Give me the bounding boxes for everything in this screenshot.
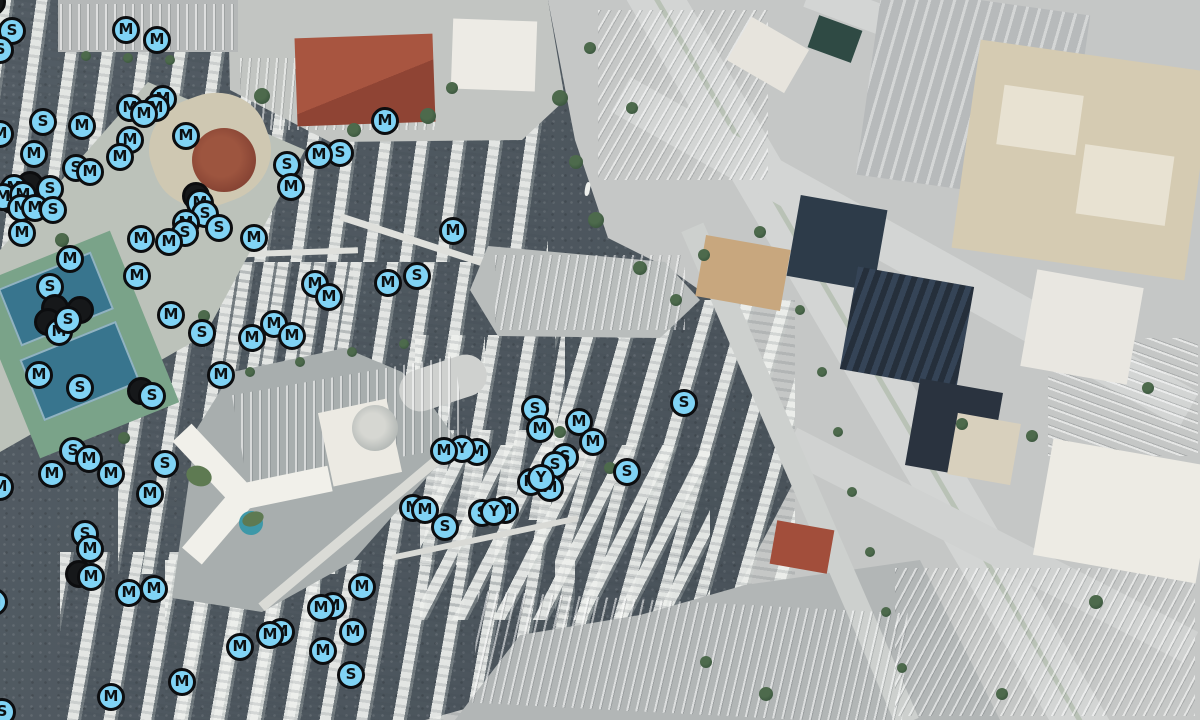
map-marker-m[interactable]: M (56, 245, 84, 273)
map-marker-m[interactable]: M (579, 428, 607, 456)
map-marker-s[interactable]: S (54, 306, 82, 334)
map-marker-m[interactable]: M (430, 437, 458, 465)
marker-layer: MSSMMMMMMSMMMMMMSMMMMMMSMMSMMSMSMMSMMMSM… (0, 0, 1200, 720)
map-marker-m[interactable]: M (136, 480, 164, 508)
map-marker-m[interactable]: M (307, 594, 335, 622)
map-marker-m[interactable]: M (127, 225, 155, 253)
map-marker-s[interactable]: S (337, 661, 365, 689)
map-marker-m[interactable]: M (0, 120, 14, 148)
map-marker-m[interactable]: M (240, 224, 268, 252)
map-marker-s[interactable]: S (188, 319, 216, 347)
map-marker-s[interactable]: S (39, 196, 67, 224)
map-marker-m[interactable]: M (76, 158, 104, 186)
map-marker-s[interactable]: S (151, 450, 179, 478)
map-marker-m[interactable]: M (112, 16, 140, 44)
map-marker-m[interactable]: M (76, 535, 104, 563)
map-marker-m[interactable]: M (256, 621, 284, 649)
map-marker-m[interactable]: M (97, 683, 125, 711)
map-marker-s[interactable]: S (403, 262, 431, 290)
map-marker-m[interactable]: M (277, 173, 305, 201)
map-marker-m[interactable]: M (77, 563, 105, 591)
map-marker-m[interactable]: M (20, 140, 48, 168)
map-marker-m[interactable]: M (168, 668, 196, 696)
map-marker-m[interactable]: M (115, 579, 143, 607)
map-marker-s[interactable]: S (29, 108, 57, 136)
map-marker-m[interactable]: M (38, 460, 66, 488)
map-marker-m[interactable]: M (143, 26, 171, 54)
map-marker-m[interactable]: M (309, 637, 337, 665)
map-marker-m[interactable]: M (172, 122, 200, 150)
map-marker-m[interactable]: M (339, 618, 367, 646)
map-marker-s[interactable]: S (670, 389, 698, 417)
map-marker-m[interactable]: M (305, 141, 333, 169)
map-marker-m[interactable]: M (8, 219, 36, 247)
map-marker-m[interactable]: M (315, 283, 343, 311)
map-marker-m[interactable]: M (0, 473, 14, 501)
map-marker-m[interactable]: M (157, 301, 185, 329)
map-marker-m[interactable]: M (25, 361, 53, 389)
map-marker-s[interactable]: S (66, 374, 94, 402)
map-marker-s[interactable]: S (613, 458, 641, 486)
map-marker-stacked[interactable]: M (0, 0, 6, 16)
map-marker-m[interactable]: M (374, 269, 402, 297)
map-marker-m[interactable]: M (140, 575, 168, 603)
map-marker-m[interactable]: M (106, 143, 134, 171)
map-marker-m[interactable]: M (371, 107, 399, 135)
map-marker-y[interactable]: Y (480, 498, 508, 526)
map-marker-m[interactable]: M (123, 262, 151, 290)
map-marker-m[interactable]: M (226, 633, 254, 661)
map-marker-m[interactable]: M (439, 217, 467, 245)
map-marker-s[interactable]: S (205, 214, 233, 242)
map-marker-m[interactable]: M (155, 228, 183, 256)
map-marker-m[interactable]: M (68, 112, 96, 140)
map-marker-m[interactable]: M (130, 100, 158, 128)
map-marker-m[interactable]: M (97, 460, 125, 488)
satellite-map[interactable]: MSSMMMMMMSMMMMMMSMMMMMMSMMSMMSMSMMSMMMSM… (0, 0, 1200, 720)
map-marker-m[interactable]: M (278, 322, 306, 350)
map-marker-m[interactable]: M (348, 573, 376, 601)
map-marker-s[interactable]: S (138, 382, 166, 410)
map-marker-m[interactable]: M (526, 415, 554, 443)
map-marker-y[interactable]: Y (527, 464, 555, 492)
map-marker-m[interactable]: M (207, 361, 235, 389)
map-marker-m[interactable]: M (0, 588, 8, 616)
map-marker-s[interactable]: S (0, 698, 16, 720)
map-marker-s[interactable]: S (431, 513, 459, 541)
